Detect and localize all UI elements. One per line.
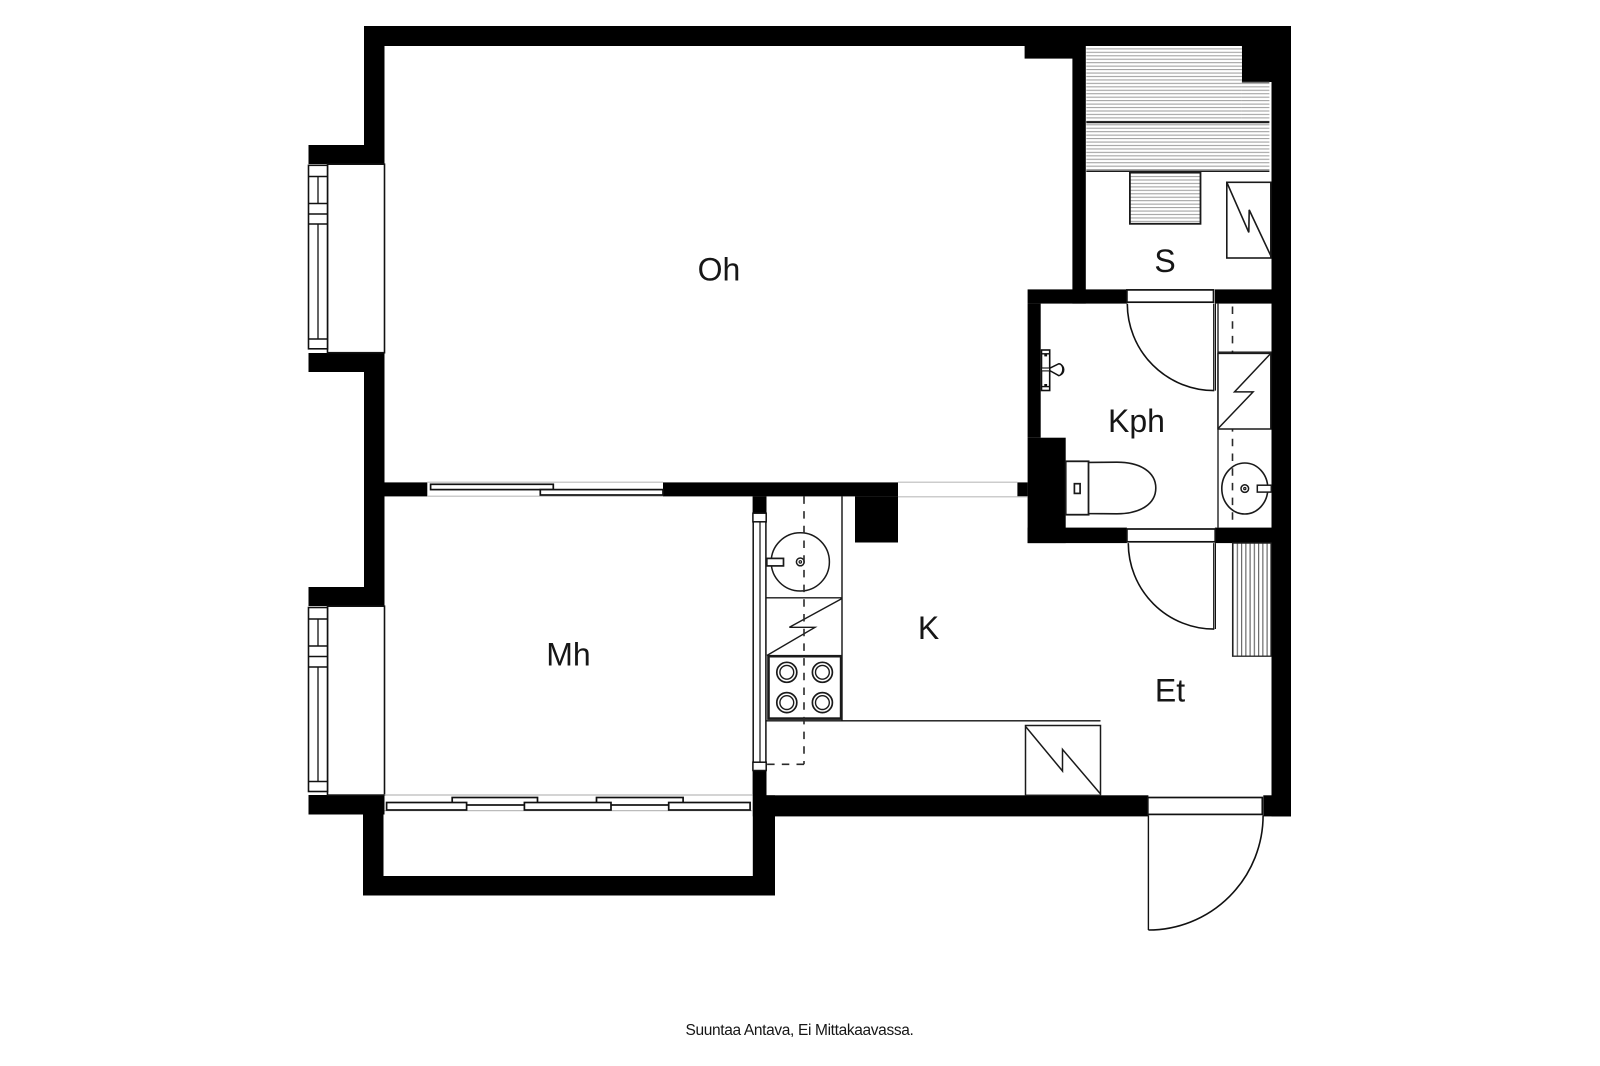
svg-text:S: S <box>1154 243 1175 279</box>
svg-text:Mh: Mh <box>546 637 590 673</box>
svg-text:Suuntaa Antava, Ei Mittakaavas: Suuntaa Antava, Ei Mittakaavassa. <box>686 1022 914 1039</box>
svg-text:K: K <box>918 610 939 646</box>
svg-text:Kph: Kph <box>1108 403 1165 439</box>
svg-text:Et: Et <box>1155 673 1185 709</box>
svg-text:Oh: Oh <box>698 252 741 288</box>
